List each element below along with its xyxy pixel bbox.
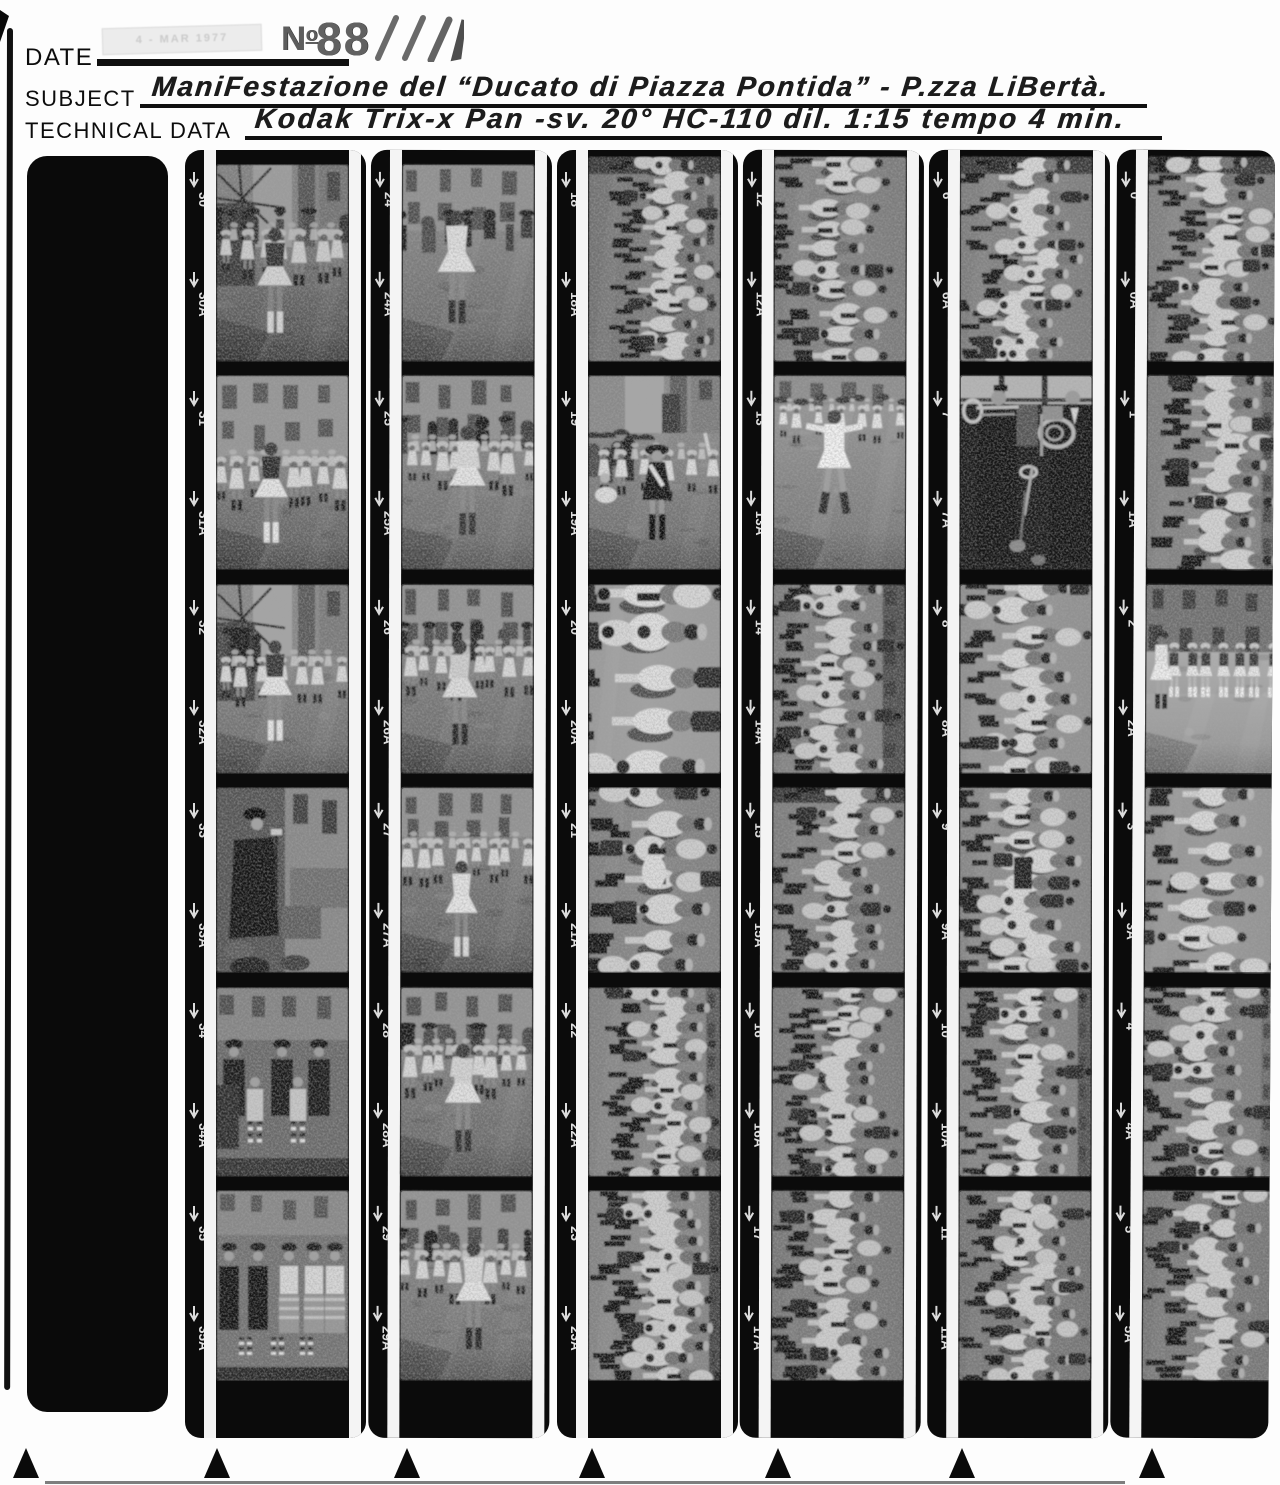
svg-text:31: 31 (196, 411, 204, 427)
svg-text:31A: 31A (196, 511, 204, 536)
svg-text:10: 10 (939, 1023, 948, 1038)
svg-text:25: 25 (381, 411, 390, 427)
svg-text:30A: 30A (196, 292, 204, 317)
svg-text:13: 13 (753, 411, 762, 427)
svg-text:26: 26 (381, 620, 390, 636)
svg-text:23A: 23A (568, 1326, 576, 1351)
svg-text:35A: 35A (196, 1326, 204, 1351)
svg-text:18A: 18A (568, 292, 576, 317)
svg-text:1: 1 (1127, 411, 1136, 419)
svg-text:25A: 25A (381, 511, 390, 536)
svg-text:21A: 21A (568, 923, 576, 948)
svg-text:0: 0 (1128, 192, 1136, 200)
svg-text:26A: 26A (381, 720, 390, 745)
svg-text:22A: 22A (568, 1123, 576, 1148)
svg-text:13A: 13A (753, 511, 762, 536)
svg-text:7: 7 (940, 411, 948, 419)
svg-text:32: 32 (196, 620, 204, 635)
svg-text:30: 30 (196, 192, 204, 207)
svg-text:6: 6 (940, 192, 948, 200)
svg-text:12A: 12A (754, 292, 762, 317)
svg-text:35: 35 (196, 1226, 204, 1242)
svg-text:18: 18 (568, 192, 576, 208)
svg-text:0A: 0A (1127, 292, 1136, 310)
svg-text:22: 22 (568, 1023, 576, 1038)
svg-text:24: 24 (382, 192, 390, 208)
svg-text:9: 9 (939, 823, 948, 831)
svg-text:23: 23 (568, 1226, 576, 1242)
svg-text:34: 34 (196, 1023, 204, 1039)
svg-text:19A: 19A (568, 511, 576, 536)
svg-text:20A: 20A (568, 720, 576, 745)
svg-text:24A: 24A (382, 292, 390, 317)
svg-text:14: 14 (753, 620, 762, 636)
svg-text:21: 21 (568, 823, 576, 839)
svg-text:9A: 9A (939, 923, 948, 941)
svg-text:34A: 34A (196, 1123, 204, 1148)
svg-text:33: 33 (196, 823, 204, 839)
svg-text:8A: 8A (939, 720, 948, 738)
svg-text:8: 8 (939, 620, 948, 628)
svg-text:20: 20 (568, 620, 576, 635)
svg-text:12: 12 (754, 192, 762, 207)
svg-text:19: 19 (568, 411, 576, 426)
svg-text:6A: 6A (940, 292, 948, 310)
svg-text:10A: 10A (939, 1123, 948, 1148)
svg-text:7A: 7A (939, 511, 948, 529)
svg-text:33A: 33A (196, 923, 204, 948)
svg-text:32A: 32A (196, 720, 204, 745)
